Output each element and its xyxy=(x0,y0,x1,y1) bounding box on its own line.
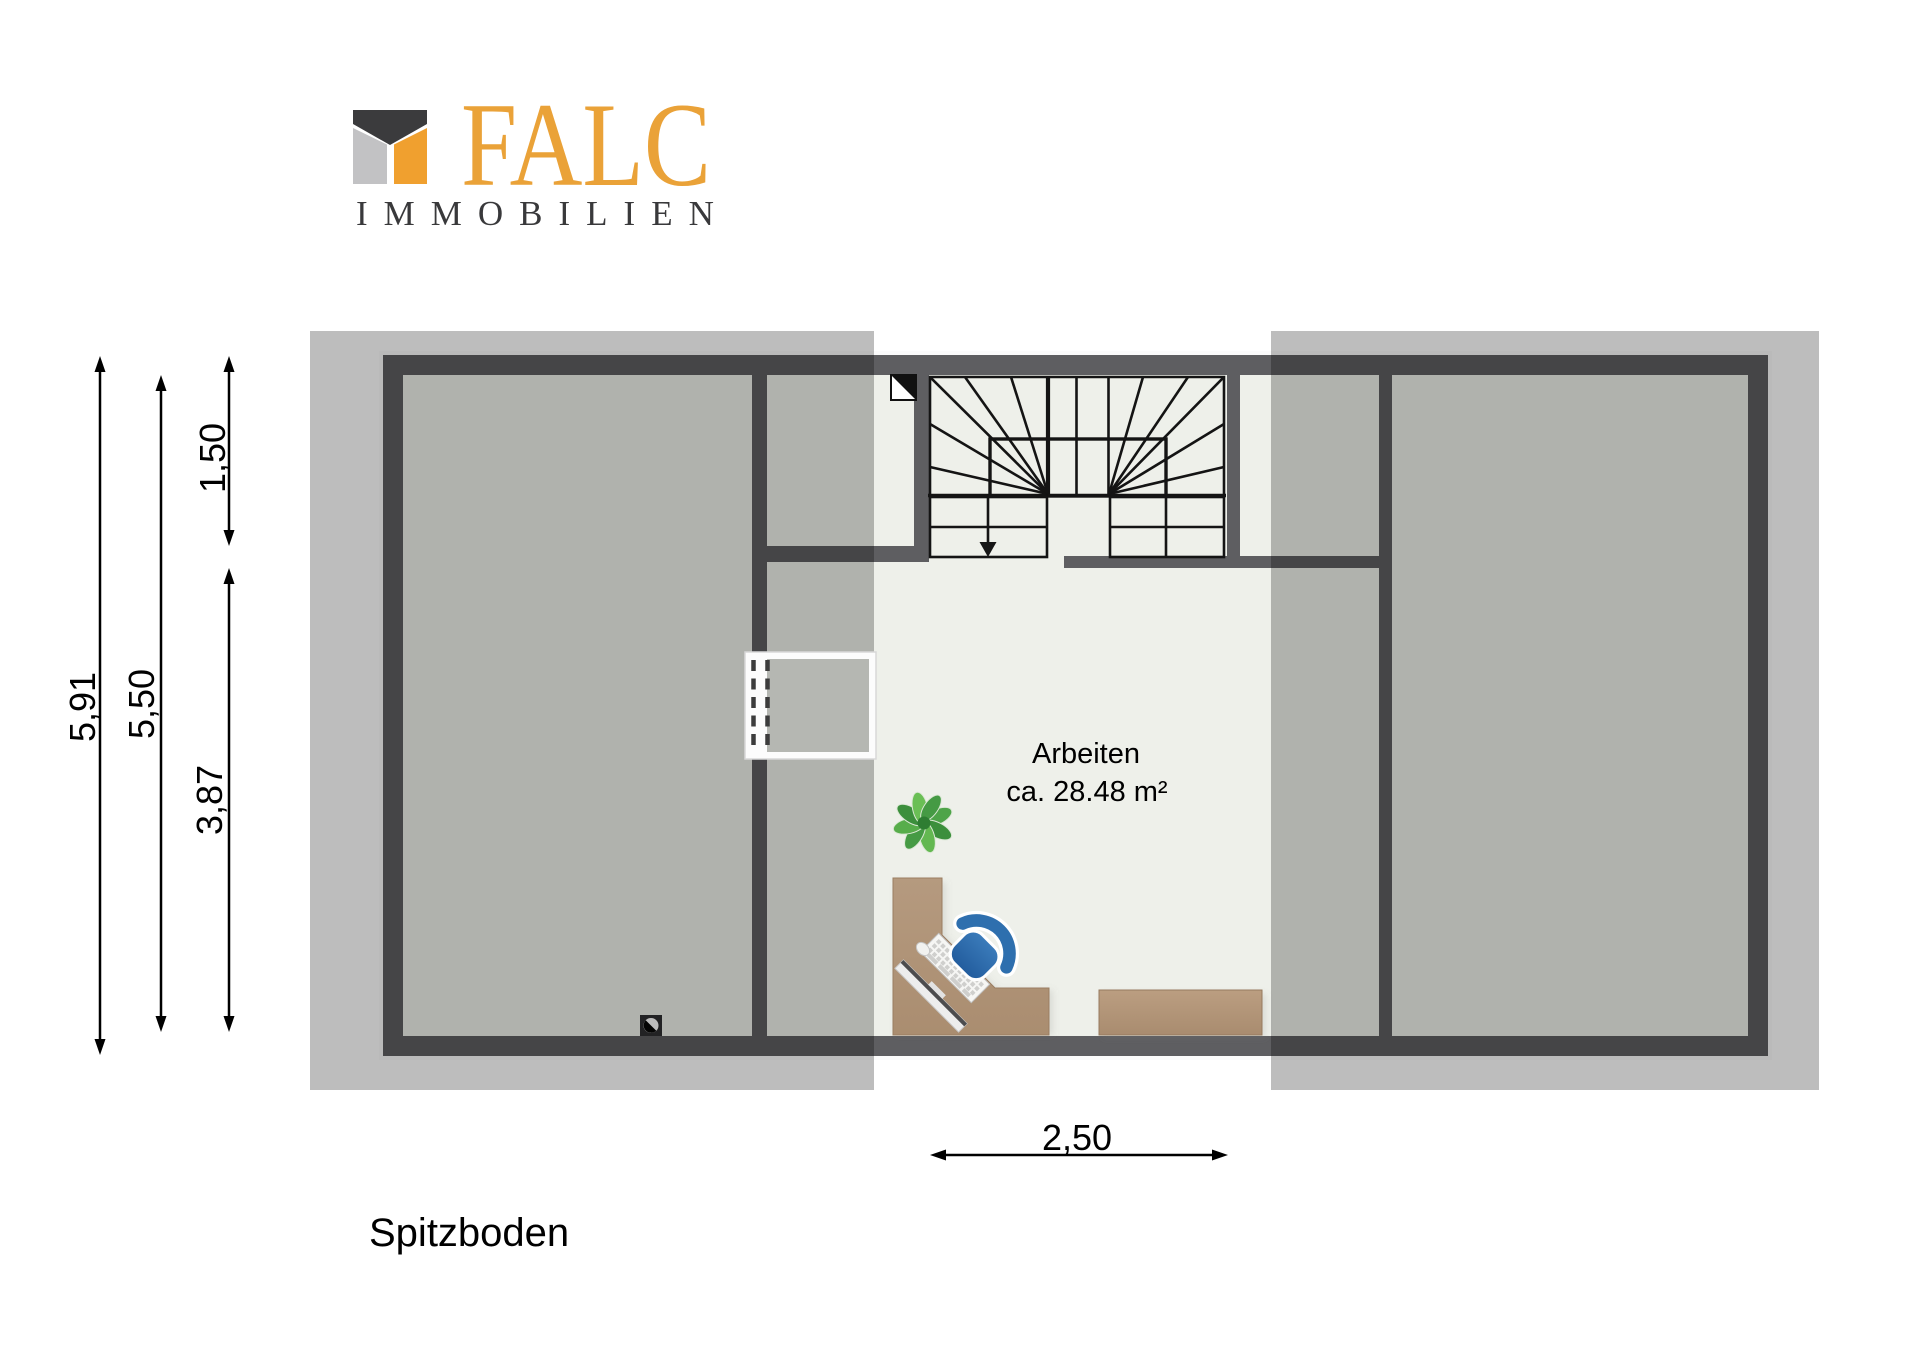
svg-text:3,87: 3,87 xyxy=(189,765,230,835)
svg-text:5,91: 5,91 xyxy=(62,672,103,742)
svg-text:FALC: FALC xyxy=(461,78,711,211)
svg-text:Arbeiten: Arbeiten xyxy=(1032,738,1140,770)
svg-text:2,50: 2,50 xyxy=(1042,1117,1112,1158)
svg-text:Spitzboden: Spitzboden xyxy=(369,1211,569,1255)
svg-text:ca. 28.48 m²: ca. 28.48 m² xyxy=(1006,776,1168,808)
svg-text:IMMOBILIEN: IMMOBILIEN xyxy=(356,194,730,233)
svg-text:1,50: 1,50 xyxy=(192,423,233,493)
svg-text:5,50: 5,50 xyxy=(121,669,162,739)
